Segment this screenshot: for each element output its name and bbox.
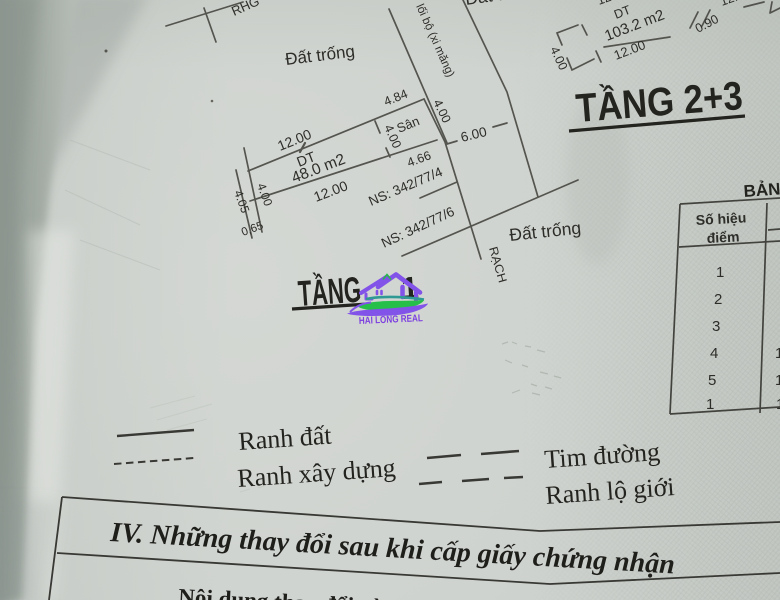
svg-text:1: 1 <box>400 270 420 306</box>
svg-text:Đất trống: Đất trống <box>284 42 356 69</box>
svg-text:TẦNG 2+3: TẦNG 2+3 <box>574 72 744 131</box>
svg-text:1: 1 <box>706 396 714 413</box>
svg-text:Ranh lộ giới: Ranh lộ giới <box>544 472 675 510</box>
svg-text:1: 1 <box>716 264 724 281</box>
svg-text:4.66: 4.66 <box>405 148 433 169</box>
svg-text:1: 1 <box>775 345 780 362</box>
svg-text:3: 3 <box>712 318 720 335</box>
svg-text:1: 1 <box>776 396 780 413</box>
svg-text:Ranh đất: Ranh đất <box>237 421 333 456</box>
svg-text:lối bộ (xi măng): lối bộ (xi măng) <box>413 2 456 79</box>
svg-text:6.00: 6.00 <box>459 124 488 145</box>
svg-text:5: 5 <box>708 372 716 389</box>
svg-text:TẦNG: TẦNG <box>297 269 363 314</box>
svg-text:0,65: 0,65 <box>240 220 265 239</box>
svg-text:Đất trống: Đất trống <box>464 0 538 9</box>
svg-text:IV. Những thay đổi sau khi cấp: IV. Những thay đổi sau khi cấp giấy chứn… <box>109 517 676 581</box>
svg-text:12.00: 12.00 <box>311 177 350 205</box>
svg-text:RẠCH: RẠCH <box>486 245 510 284</box>
svg-text:4: 4 <box>710 345 718 362</box>
svg-text:103.2 m2: 103.2 m2 <box>602 6 666 44</box>
svg-text:2: 2 <box>714 291 722 308</box>
svg-text:điểm: điểm <box>706 228 739 246</box>
svg-text:RHG: RHG <box>229 0 261 19</box>
svg-text:DT: DT <box>294 148 318 170</box>
svg-text:HAI LONG REAL: HAI LONG REAL <box>359 313 423 327</box>
svg-text:4.05: 4.05 <box>231 188 252 215</box>
svg-text:Tim đường: Tim đường <box>543 437 661 474</box>
svg-text:Số hiệu: Số hiệu <box>695 209 746 228</box>
svg-text:Ranh xây dựng: Ranh xây dựng <box>236 453 396 493</box>
svg-text:4.00: 4.00 <box>254 181 275 208</box>
svg-text:48.0 m2: 48.0 m2 <box>289 151 347 187</box>
svg-text:12.0: 12.0 <box>718 0 746 9</box>
svg-text:DT: DT <box>612 3 633 22</box>
svg-text:4.00: 4.00 <box>430 97 453 125</box>
svg-text:4.84: 4.84 <box>382 87 410 109</box>
svg-text:12.00: 12.00 <box>275 126 314 154</box>
svg-text:4.00: 4.00 <box>381 123 404 151</box>
svg-text:12.4: 12.4 <box>595 0 623 8</box>
svg-text:4.00: 4.00 <box>547 44 570 72</box>
svg-text:Nội dung thay đổi và cơ sở phá: Nội dung thay đổi và cơ sở pháp lý <box>178 584 519 600</box>
svg-text:NS: 342/77/6: NS: 342/77/6 <box>379 204 457 251</box>
svg-text:NS: 342/77/4: NS: 342/77/4 <box>366 164 445 209</box>
svg-text:1: 1 <box>775 372 780 389</box>
svg-text:12.00: 12.00 <box>612 37 648 63</box>
svg-text:BẢNG: BẢNG <box>743 179 780 201</box>
svg-text:0.90: 0.90 <box>693 12 721 36</box>
svg-text:Sân: Sân <box>395 113 422 136</box>
svg-text:Đất trống: Đất trống <box>508 218 582 245</box>
